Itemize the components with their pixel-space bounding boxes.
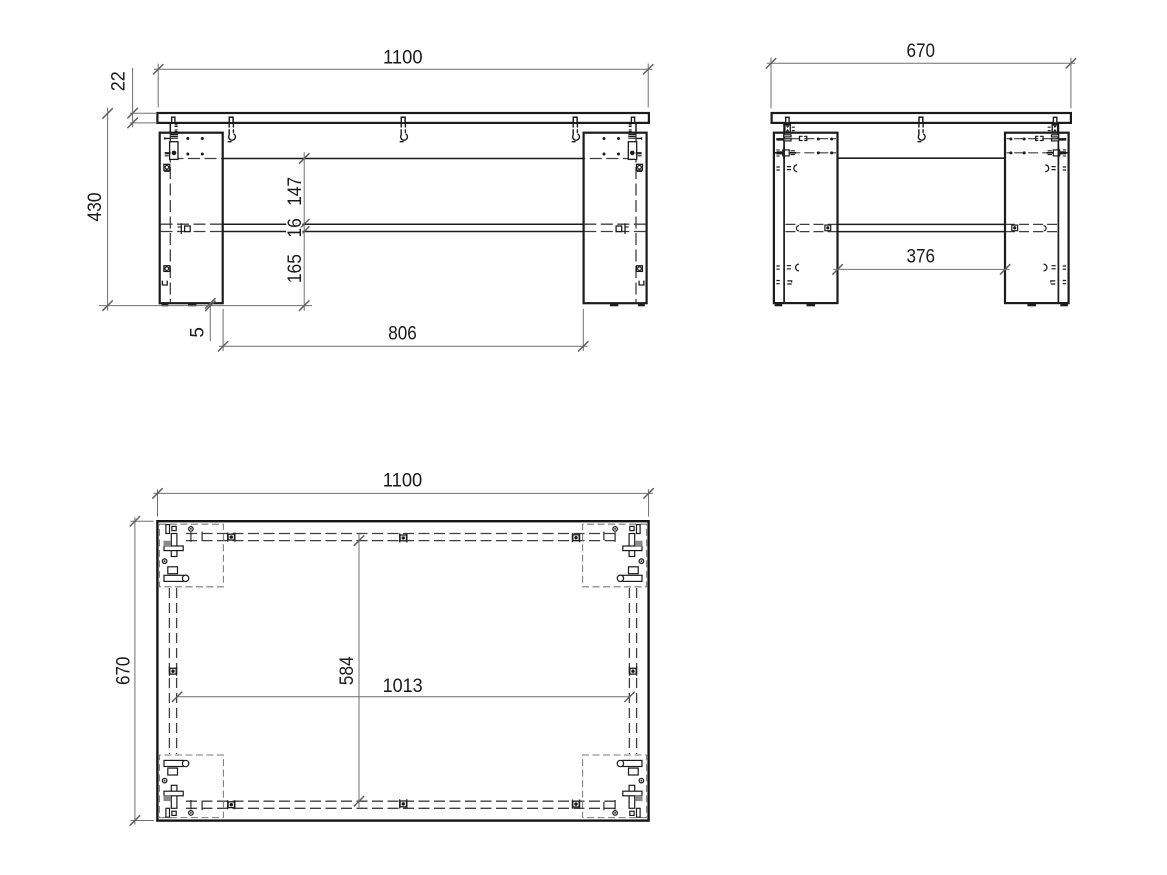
svg-text:430: 430: [84, 192, 106, 221]
svg-text:806: 806: [388, 323, 417, 345]
svg-text:376: 376: [907, 246, 936, 268]
svg-text:584: 584: [336, 656, 358, 685]
svg-text:670: 670: [112, 656, 134, 685]
svg-text:165: 165: [284, 254, 306, 283]
svg-text:1100: 1100: [383, 46, 423, 68]
svg-text:1100: 1100: [383, 470, 423, 492]
svg-text:22: 22: [108, 71, 130, 91]
svg-text:147: 147: [284, 177, 306, 206]
svg-text:670: 670: [907, 40, 936, 62]
svg-text:16: 16: [284, 218, 306, 238]
svg-text:1013: 1013: [383, 675, 423, 697]
svg-text:5: 5: [187, 327, 209, 338]
